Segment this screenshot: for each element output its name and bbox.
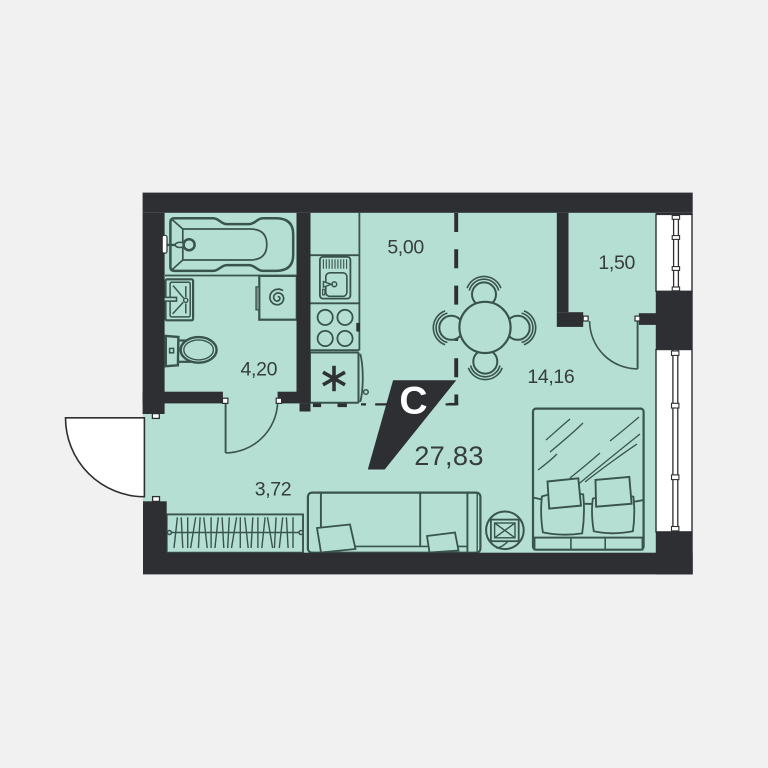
- svg-text:3,72: 3,72: [255, 478, 292, 500]
- svg-text:1,50: 1,50: [598, 252, 635, 274]
- svg-text:27,83: 27,83: [414, 440, 484, 471]
- svg-text:C: C: [399, 380, 427, 423]
- svg-text:14,16: 14,16: [527, 366, 574, 388]
- svg-text:4,20: 4,20: [241, 359, 278, 381]
- svg-text:5,00: 5,00: [387, 237, 424, 259]
